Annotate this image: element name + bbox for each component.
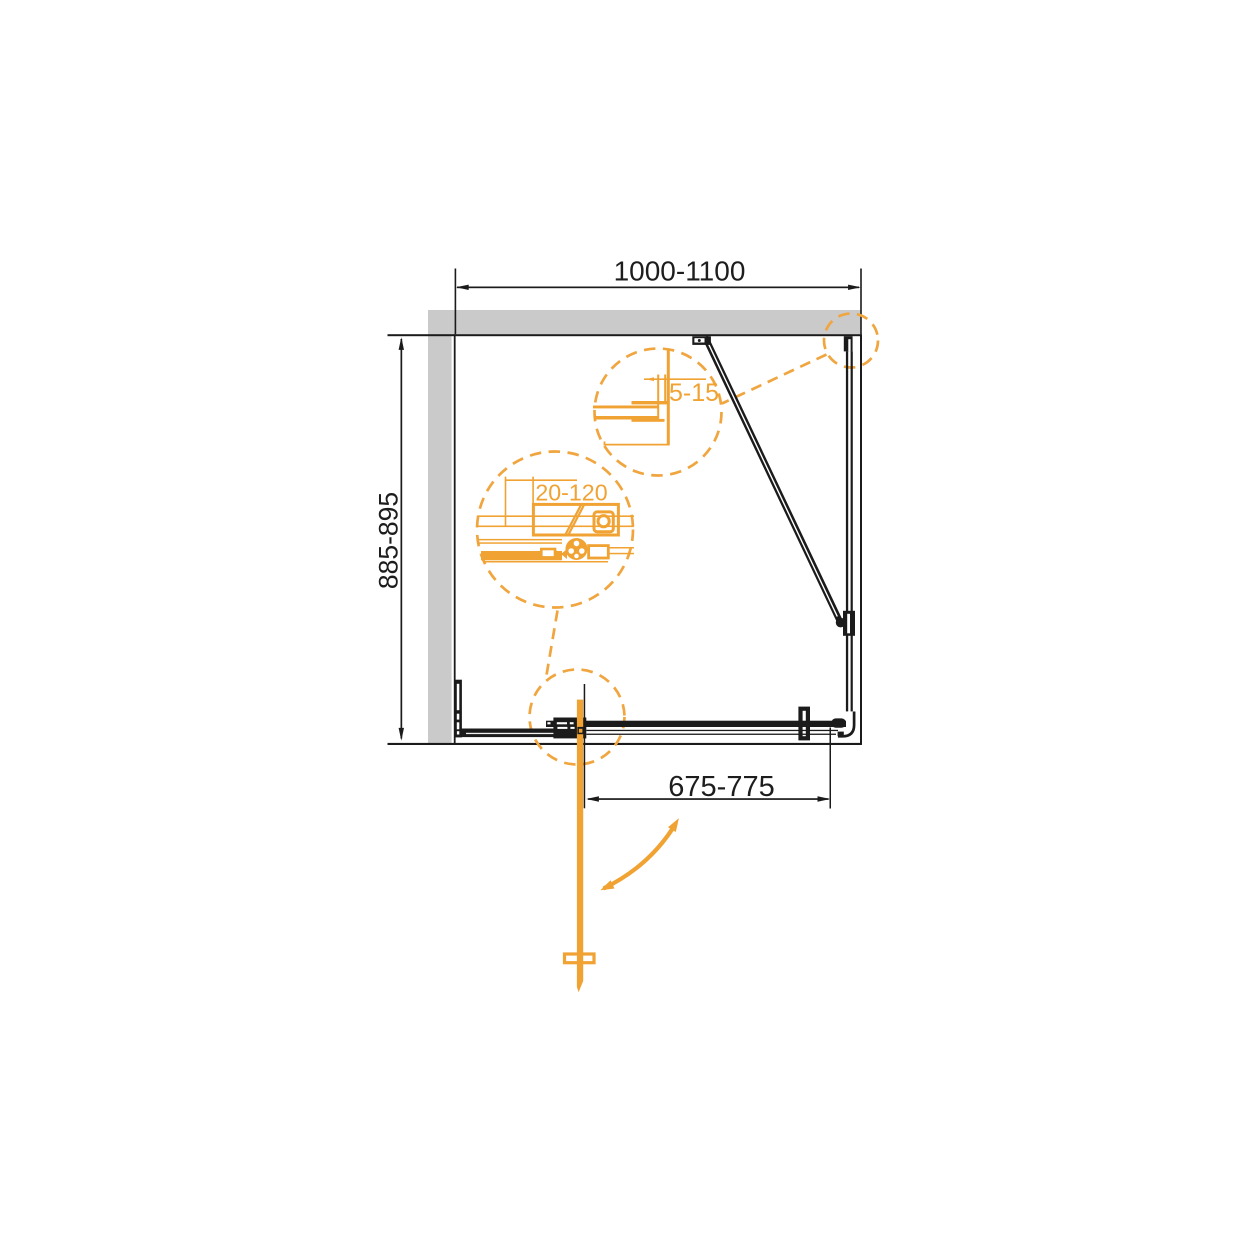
svg-text:885-895: 885-895 xyxy=(374,492,404,589)
svg-text:5-15: 5-15 xyxy=(669,379,719,407)
svg-text:1000-1100: 1000-1100 xyxy=(614,256,746,287)
svg-text:675-775: 675-775 xyxy=(668,771,774,803)
svg-text:20-120: 20-120 xyxy=(535,479,607,505)
